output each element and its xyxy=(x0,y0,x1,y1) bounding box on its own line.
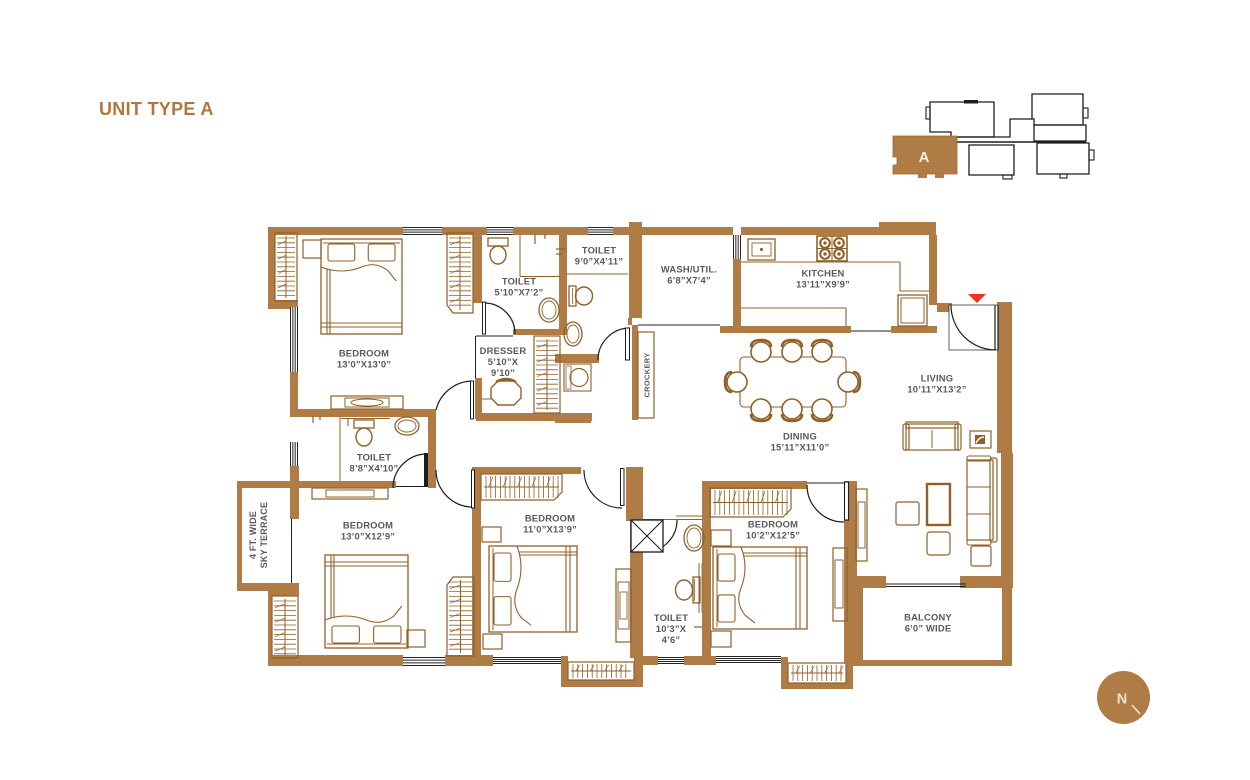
svg-text:TOILET: TOILET xyxy=(654,612,688,623)
svg-text:TOILET: TOILET xyxy=(502,276,536,287)
svg-text:DINING: DINING xyxy=(783,431,817,442)
svg-text:15’11”X11’0”: 15’11”X11’0” xyxy=(771,442,830,453)
svg-text:CROCKERY: CROCKERY xyxy=(643,352,652,397)
svg-text:WASH/UTIL.: WASH/UTIL. xyxy=(661,264,717,275)
svg-text:13’0”X12’9”: 13’0”X12’9” xyxy=(341,531,395,542)
svg-text:5’10”X: 5’10”X xyxy=(488,356,519,367)
svg-text:8’8”X4’10”: 8’8”X4’10” xyxy=(350,463,399,474)
svg-text:10’3”X: 10’3”X xyxy=(656,623,687,634)
svg-text:9’10”: 9’10” xyxy=(491,367,515,378)
svg-text:13’0”X13’0”: 13’0”X13’0” xyxy=(337,359,391,370)
svg-text:11’0”X13’9”: 11’0”X13’9” xyxy=(523,524,577,535)
svg-text:10’2”X12’5”: 10’2”X12’5” xyxy=(746,530,800,541)
svg-text:BEDROOM: BEDROOM xyxy=(748,519,798,530)
svg-text:KITCHEN: KITCHEN xyxy=(801,268,844,279)
svg-text:4 FT. WIDE: 4 FT. WIDE xyxy=(248,511,258,559)
svg-text:4’6”: 4’6” xyxy=(662,634,681,645)
svg-text:SKY TERRACE: SKY TERRACE xyxy=(259,502,269,569)
svg-text:UNIT TYPE A: UNIT TYPE A xyxy=(99,99,214,119)
svg-text:6’0” WIDE: 6’0” WIDE xyxy=(905,623,952,634)
svg-text:9’0”X4’11”: 9’0”X4’11” xyxy=(575,256,623,267)
svg-text:BEDROOM: BEDROOM xyxy=(339,348,389,359)
svg-text:N: N xyxy=(1117,692,1127,708)
svg-text:TOILET: TOILET xyxy=(357,452,391,463)
svg-text:10’11”X13’2”: 10’11”X13’2” xyxy=(907,384,966,395)
svg-text:5’10”X7’2”: 5’10”X7’2” xyxy=(495,287,544,298)
svg-text:BEDROOM: BEDROOM xyxy=(343,520,393,531)
svg-text:TOILET: TOILET xyxy=(582,245,616,256)
svg-text:LIVING: LIVING xyxy=(921,373,953,384)
svg-text:DRESSER: DRESSER xyxy=(480,345,527,356)
svg-text:6’8”X7’4”: 6’8”X7’4” xyxy=(667,275,711,286)
svg-text:A: A xyxy=(919,149,930,166)
svg-text:BEDROOM: BEDROOM xyxy=(525,513,575,524)
svg-text:BALCONY: BALCONY xyxy=(904,612,952,623)
svg-text:13’11”X9’9”: 13’11”X9’9” xyxy=(796,279,850,290)
